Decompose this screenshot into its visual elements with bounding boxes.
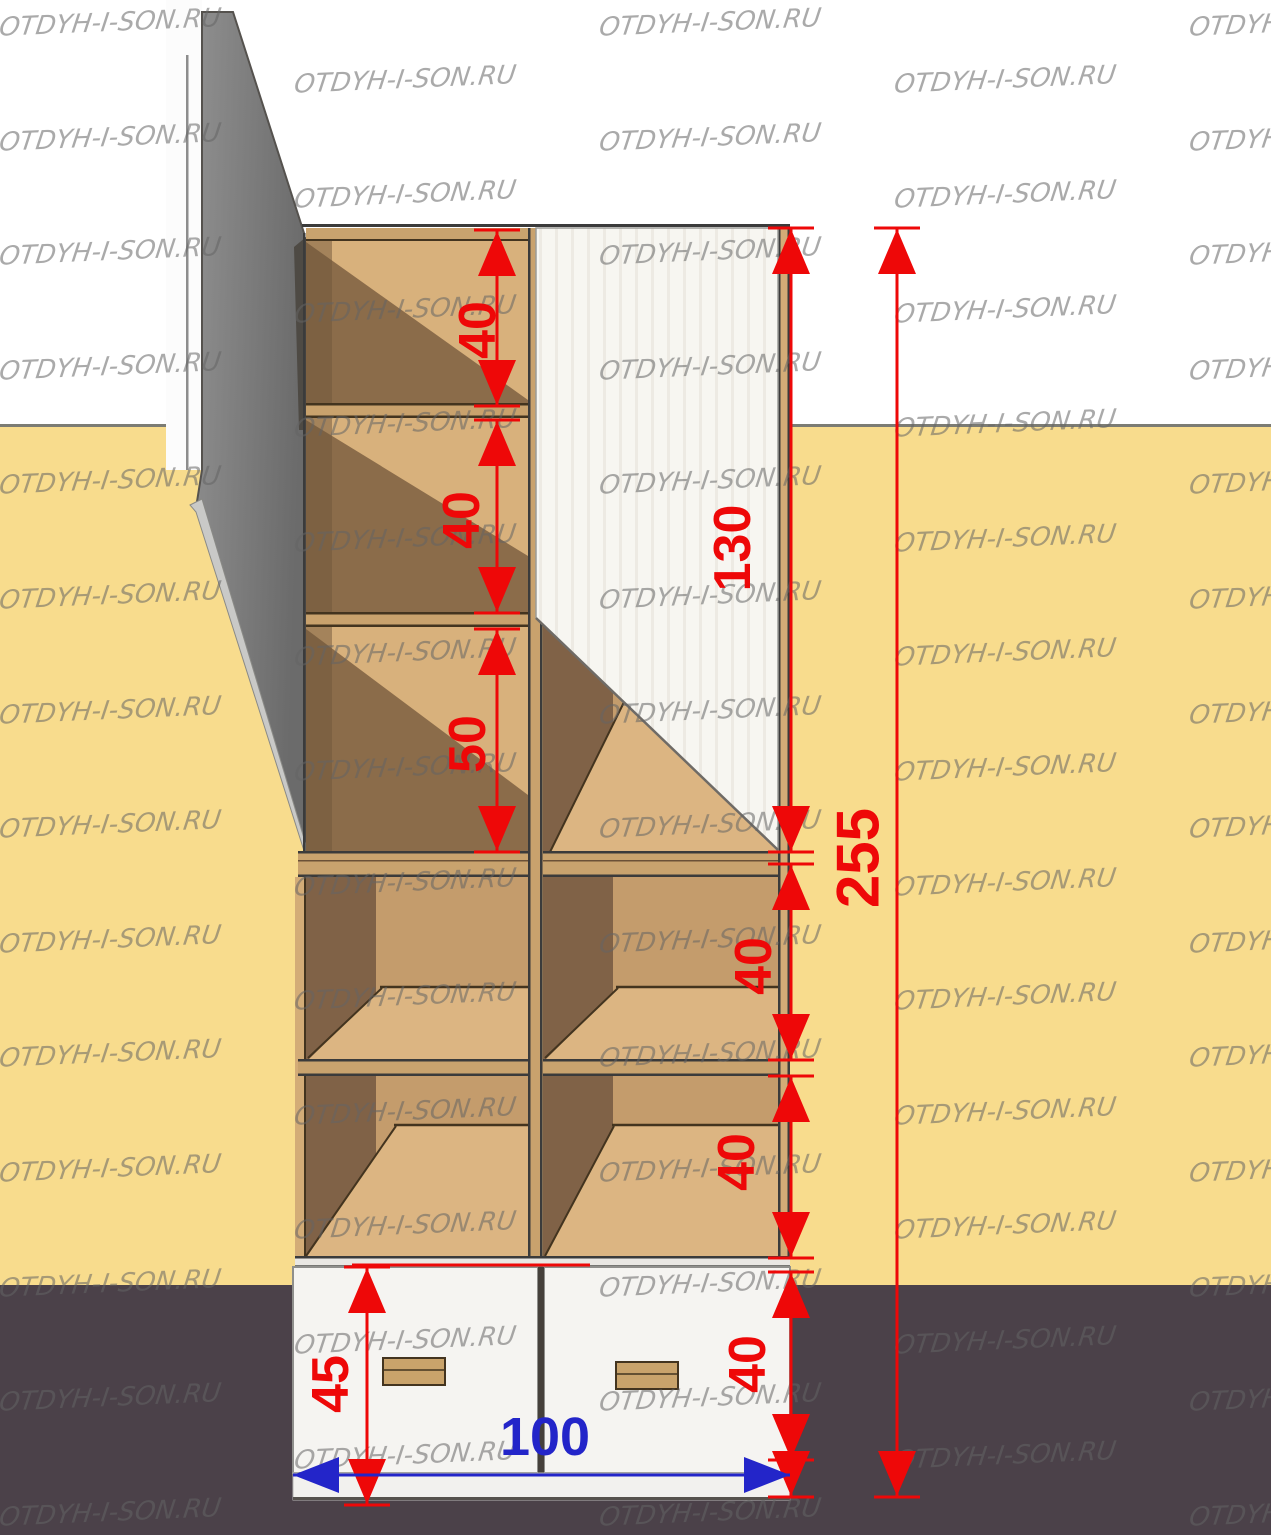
dimension-arrowhead: [772, 1212, 810, 1257]
dimension-arrowhead: [878, 1451, 916, 1496]
dim-shelf1-height: 40: [449, 301, 507, 359]
dimension-arrowhead: [478, 360, 516, 405]
dimension-arrowhead: [772, 1077, 810, 1122]
dimension-arrowhead: [293, 1457, 339, 1493]
dim-total-width: 100: [500, 1407, 590, 1467]
dim-shelf2-height: 40: [433, 491, 491, 549]
dimension-arrowhead: [772, 229, 810, 274]
dimension-arrowhead: [772, 1014, 810, 1059]
furniture-dimension-diagram: OTDYH-I-SON.RUOTDYH-I-SON.RUOTDYH-I-SON.…: [0, 0, 1271, 1535]
dim-shelf3-height: 50: [439, 715, 497, 773]
dimension-arrowhead: [478, 421, 516, 466]
dimension-arrowhead: [878, 229, 916, 274]
dimension-arrowhead: [772, 865, 810, 910]
dim-shelf5-height: 40: [708, 1133, 766, 1191]
dim-drawer-front-height: 40: [719, 1335, 777, 1393]
dimensions-svg: 40 40 50 130 40 40 40 45 255 100: [0, 0, 1271, 1535]
dimension-arrowhead: [478, 630, 516, 675]
dim-shelf4-height: 40: [725, 937, 783, 995]
dimension-arrowhead: [478, 806, 516, 851]
dimension-arrowhead: [772, 806, 810, 851]
dimension-arrowhead: [772, 1273, 810, 1318]
dimension-arrowhead: [348, 1459, 386, 1504]
dimension-arrowhead: [348, 1268, 386, 1313]
dim-door-height: 130: [704, 505, 762, 592]
dim-drawer-total-height: 45: [302, 1355, 360, 1413]
dim-total-height: 255: [825, 808, 892, 908]
dimension-arrowhead: [478, 567, 516, 612]
dimension-arrowhead: [478, 231, 516, 276]
